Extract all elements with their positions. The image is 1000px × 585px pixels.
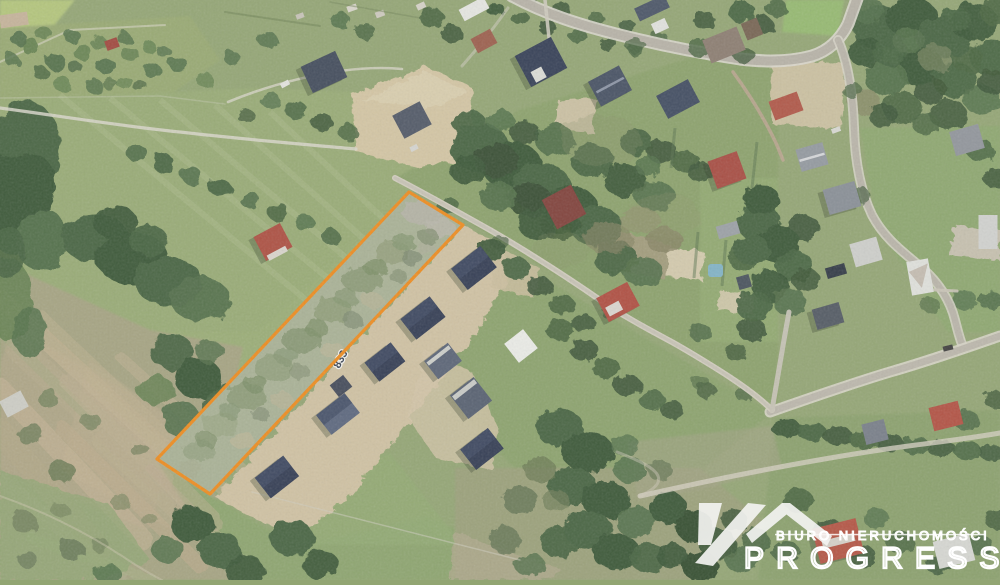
svg-text:PROGRESS: PROGRESS bbox=[744, 542, 1000, 575]
svg-text:BIURO NIERUCHOMOŚCI: BIURO NIERUCHOMOŚCI bbox=[776, 528, 990, 543]
